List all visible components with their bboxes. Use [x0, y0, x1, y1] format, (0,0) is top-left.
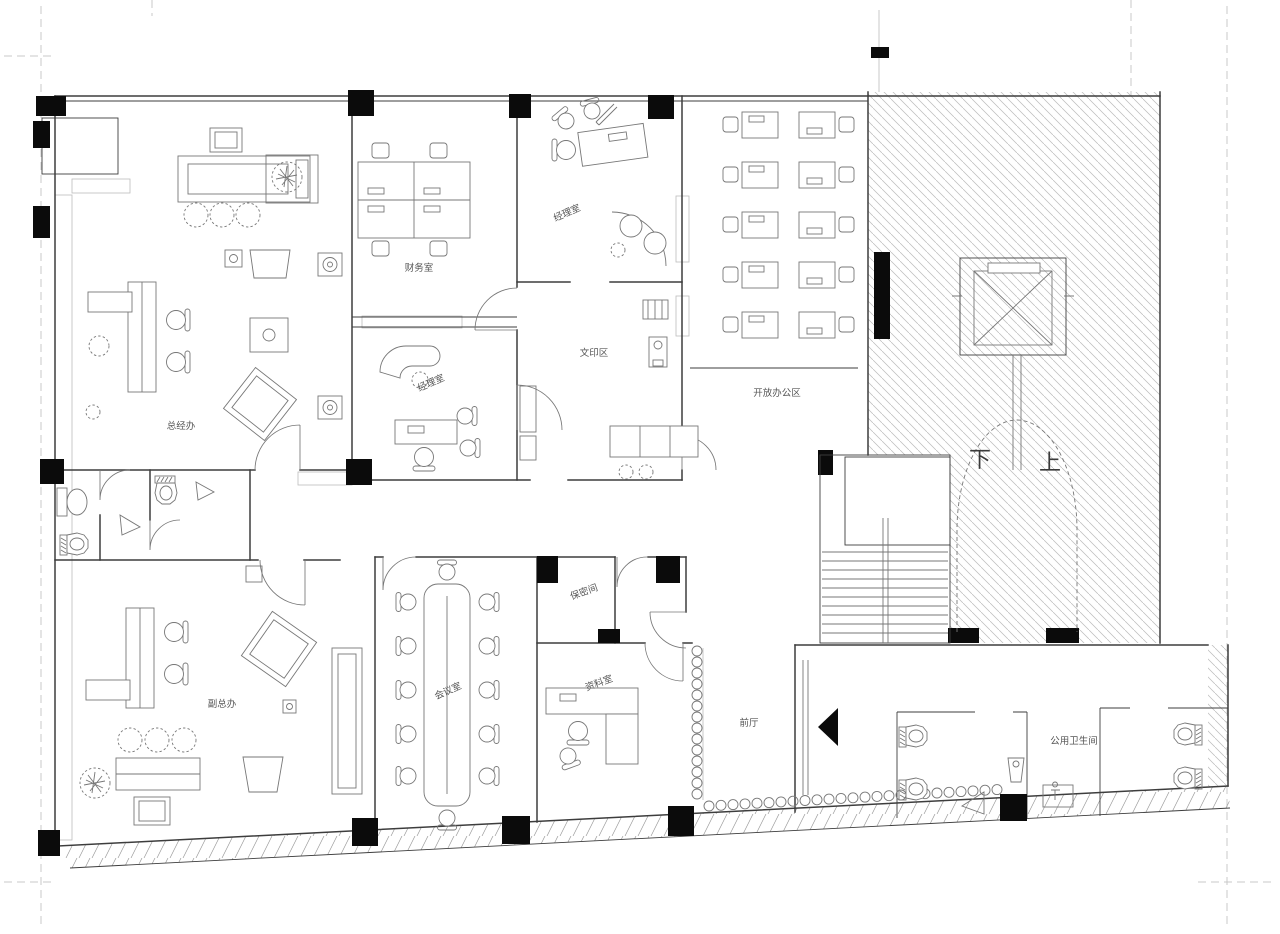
- meeting-chair-icon: [396, 681, 416, 700]
- room-label-secure: 保密间: [569, 581, 600, 602]
- meeting-chair-icon: [479, 681, 499, 700]
- cabinet: [520, 436, 536, 460]
- room-label-finance: 财务室: [405, 262, 434, 274]
- drain-arrow-icon: [196, 482, 214, 500]
- lounge-chair: [243, 757, 283, 792]
- office-chair-icon: [165, 663, 189, 685]
- wc-fixtures: [57, 476, 214, 555]
- chair: [372, 241, 389, 256]
- meeting-chair-icon: [479, 725, 499, 744]
- meeting-chair-icon: [479, 767, 499, 786]
- floor-plan-page: 总经办 财务室 经理室 经理室 文印区 开放办公区 副总办 会议室 保密间 资料…: [0, 0, 1280, 934]
- rotated-rug: [224, 368, 297, 441]
- chair: [430, 143, 447, 158]
- desk-row: [723, 212, 854, 238]
- side-table: [250, 318, 288, 352]
- wall-art: [225, 250, 242, 267]
- door-swings: [100, 288, 716, 681]
- desk-row: [723, 112, 854, 138]
- stool: [184, 203, 208, 227]
- manager-desk: [578, 123, 648, 166]
- stool: [210, 203, 234, 227]
- sink-icon: [67, 489, 87, 515]
- desk: [395, 420, 457, 444]
- manager-top-furniture: [551, 97, 666, 266]
- wall-art: [246, 566, 262, 582]
- guest-chair-icon: [457, 407, 477, 426]
- room-label-gm-office: 总经办: [167, 420, 196, 432]
- toilet-icon: [155, 476, 177, 504]
- equipment-box-icon: [318, 253, 342, 276]
- guest-chair-icon: [460, 439, 480, 458]
- stair-down-label: 下: [969, 447, 991, 472]
- equipment-box-icon: [318, 396, 342, 419]
- room-label-manager-top: 经理室: [552, 202, 583, 225]
- office-chair-icon: [165, 621, 189, 643]
- glass-partition: [803, 660, 808, 795]
- open-office-desks: [723, 112, 854, 338]
- stool: [172, 728, 196, 752]
- chair: [430, 241, 447, 256]
- floor-item: [86, 405, 100, 419]
- office-chair-icon: [413, 448, 435, 472]
- entry-arrow-icon: [818, 708, 838, 746]
- office-chair-icon: [567, 722, 589, 746]
- toilet-icon: [60, 533, 88, 555]
- printer-icon: [649, 337, 667, 367]
- manager-mid-furniture: [380, 346, 480, 471]
- room-label-copy-area: 文印区: [580, 347, 609, 359]
- copier-icon: [643, 300, 668, 319]
- sink-counter: [57, 488, 67, 516]
- stool: [118, 728, 142, 752]
- desk-return: [606, 714, 638, 764]
- meeting-chair-icon: [479, 593, 499, 612]
- guest-chair-icon: [556, 745, 581, 770]
- core-hatch: [868, 92, 1160, 643]
- desk-row: [723, 262, 854, 288]
- office-chair-icon: [167, 309, 191, 331]
- curved-sofa: [380, 346, 440, 378]
- finance-furniture: [358, 143, 470, 256]
- elevator-door: [988, 263, 1040, 273]
- chair: [372, 143, 389, 158]
- meeting-chair-icon: [479, 637, 499, 656]
- stair-up-label: 上: [1039, 450, 1061, 475]
- restroom-edge-hatch: [1208, 645, 1228, 787]
- drain-arrow-icon: [120, 515, 140, 535]
- room-label-deputy-gm: 副总办: [208, 698, 237, 710]
- corner-hatch: [42, 118, 118, 174]
- gm-office-furniture: [86, 128, 342, 440]
- bottom-wall-band: [58, 786, 1230, 868]
- wall-art: [283, 700, 296, 713]
- toilet-icon: [899, 725, 927, 747]
- room-label-front-hall: 前厅: [739, 717, 759, 729]
- toilet-icon: [899, 778, 927, 800]
- office-chair-icon: [552, 139, 576, 161]
- cabinet: [520, 386, 536, 432]
- room-label-restroom: 公用卫生间: [1050, 735, 1098, 747]
- meeting-chair-icon: [396, 637, 416, 656]
- archive-room-furniture: [546, 688, 638, 771]
- urinal-icon: [1008, 758, 1024, 782]
- office-chair-icon: [167, 351, 191, 373]
- rotated-rug: [241, 611, 316, 686]
- room-label-open-office: 开放办公区: [753, 387, 801, 399]
- counter: [610, 426, 698, 457]
- stool: [236, 203, 260, 227]
- plant-icon: [80, 768, 110, 798]
- toilet-icon: [1174, 767, 1202, 789]
- stool: [89, 336, 109, 356]
- stool: [145, 728, 169, 752]
- meeting-chair-icon: [396, 725, 416, 744]
- sofa: [332, 648, 362, 794]
- toilet-icon: [1174, 723, 1202, 745]
- copy-area-furniture: [520, 300, 698, 479]
- meeting-chair-icon: [396, 767, 416, 786]
- meeting-chair-icon: [396, 593, 416, 612]
- sofa: [178, 156, 310, 202]
- floor-plan-canvas: 总经办 财务室 经理室 经理室 文印区 开放办公区 副总办 会议室 保密间 资料…: [0, 0, 1280, 934]
- console-table: [250, 250, 290, 278]
- meeting-chair-icon: [438, 560, 457, 580]
- desk-row: [723, 162, 854, 188]
- stair-treads: [822, 552, 948, 633]
- deputy-office-furniture: [80, 566, 362, 825]
- room-label-manager-mid: 经理室: [416, 372, 447, 395]
- desk-row: [723, 312, 854, 338]
- guest-chair-icon: [551, 106, 578, 134]
